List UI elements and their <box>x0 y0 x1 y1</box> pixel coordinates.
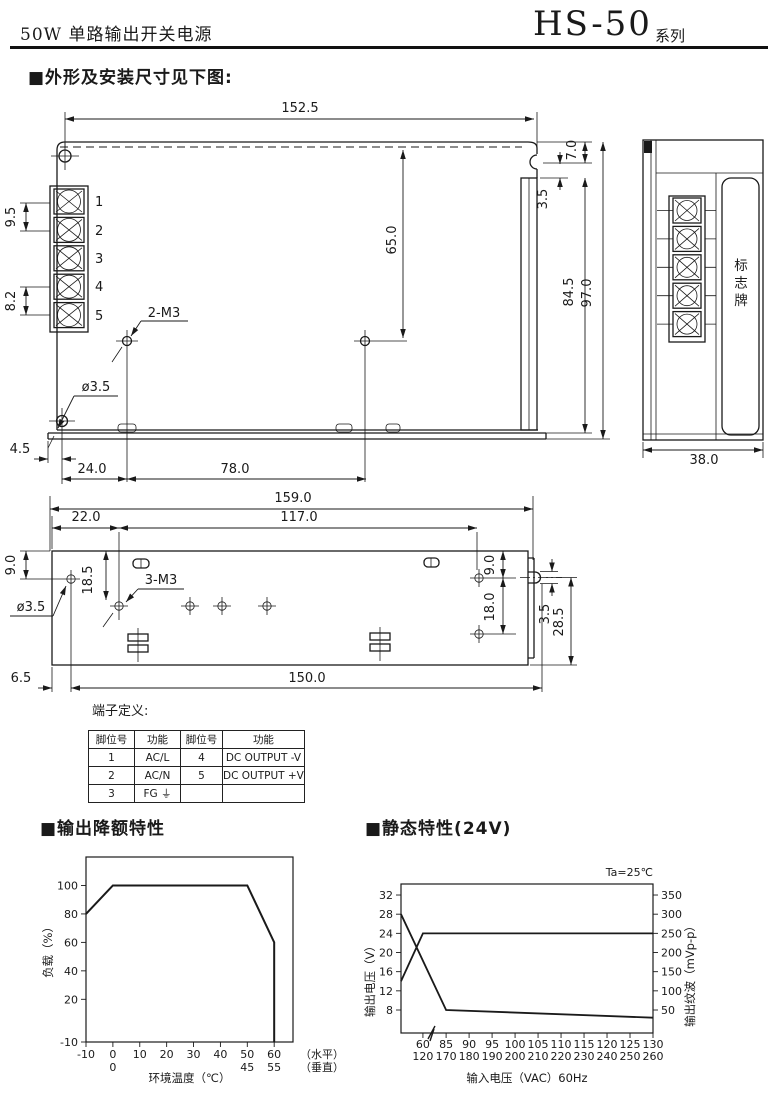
y-tick-label-left: 20 <box>379 947 393 960</box>
x-tick-label: 30 <box>187 1048 201 1061</box>
output-ripple-curve <box>401 914 653 1017</box>
x-tick-label-200v: 230 <box>574 1050 595 1063</box>
characteristic-charts: 10080604020-10-10001020304050456055（水平）（… <box>0 810 778 1096</box>
section-title-dimensions: ■外形及安装尺寸见下图: <box>28 63 233 88</box>
y-tick-label-right: 50 <box>661 1004 675 1017</box>
y-tick-label-left: 32 <box>379 889 393 902</box>
pin-cell: 4 <box>181 749 223 767</box>
x-tick-label-row2: 55 <box>267 1061 281 1074</box>
derating-curve <box>86 885 274 1042</box>
x-axis-label: 输入电压（VAC）60Hz <box>466 1071 587 1085</box>
pin-cell: 3 <box>89 785 135 803</box>
x-tick-label: 60 <box>267 1048 281 1061</box>
dim-flange-gap: 3.5 <box>536 189 551 210</box>
dim-body-height: 84.5 <box>562 278 577 307</box>
y-tick-label: 60 <box>64 936 78 949</box>
x-tick-label: 10 <box>133 1048 147 1061</box>
dim-pin-depth: 28.5 <box>552 608 567 637</box>
y-tick-label-left: 28 <box>379 908 393 921</box>
output-voltage-curve <box>401 933 653 981</box>
col-header-pin2: 脚位号 <box>181 731 223 749</box>
dim-total-height: 97.0 <box>580 279 595 308</box>
dim-total-length: 159.0 <box>274 491 311 506</box>
dim-left-margin: 6.5 <box>11 671 32 686</box>
front-view: 1 2 3 4 5 <box>48 142 546 484</box>
x-tick-label-200v: 180 <box>459 1050 480 1063</box>
terminal-number-1: 1 <box>95 195 103 210</box>
y-axis-label-left: 输出电压（V） <box>363 940 377 1017</box>
x-tick-label-row2: 0 <box>109 1061 116 1074</box>
dim-screw-holes-front: 2-M3 <box>148 306 180 321</box>
dim-pin-offset: 3.5 <box>538 604 553 625</box>
dim-hole-pitch-x: 78.0 <box>221 462 250 477</box>
y-tick-label-left: 24 <box>379 927 393 940</box>
y-tick-label: -10 <box>60 1036 78 1049</box>
y-tick-label-left: 16 <box>379 966 393 979</box>
x-tick-label-200v: 120 <box>412 1050 433 1063</box>
horizontal-mount-label: （水平） <box>300 1048 344 1061</box>
pin-cell: 5 <box>181 767 223 785</box>
dim-terminal-pitch-top: 9.5 <box>4 207 19 228</box>
dim-right-top-margin: 9.0 <box>483 555 498 576</box>
x-tick-label-200v: 240 <box>597 1050 618 1063</box>
x-tick-label-200v: 220 <box>551 1050 572 1063</box>
function-cell: DC OUTPUT -V <box>223 749 305 767</box>
pin-cell: 2 <box>89 767 135 785</box>
dim-screw-holes-bottom: 3-M3 <box>145 573 177 588</box>
function-cell: AC/N <box>135 767 181 785</box>
header-rule <box>10 46 768 49</box>
y-axis-label-right: 输出纹波（mVp-p） <box>683 920 697 1027</box>
dim-terminal-pitch-bottom: 8.2 <box>4 291 19 312</box>
y-tick-label-left: 12 <box>379 985 393 998</box>
terminal-table: 脚位号 功能 脚位号 功能 1 AC/L 4 DC OUTPUT -V 2 AC… <box>88 730 305 803</box>
x-tick-label: 40 <box>213 1048 227 1061</box>
y-axis-label: 负载（%） <box>41 921 55 978</box>
col-header-function2: 功能 <box>223 731 305 749</box>
y-tick-label-right: 150 <box>661 966 682 979</box>
terminal-number-3: 3 <box>95 252 103 267</box>
static-plot-box <box>401 884 653 1033</box>
series-label: 系列 <box>655 25 685 46</box>
y-tick-label-right: 350 <box>661 889 682 902</box>
y-tick-label-right: 200 <box>661 947 682 960</box>
x-tick-label-200v: 210 <box>528 1050 549 1063</box>
terminal-table-header-row: 脚位号 功能 脚位号 功能 <box>89 731 305 749</box>
temperature-annotation: Ta=25℃ <box>605 866 653 879</box>
x-axis-label: 环境温度（℃） <box>149 1071 231 1085</box>
datasheet-page: { "header": { "product": "50W 单路输出开关电源",… <box>0 0 778 1096</box>
x-tick-label-row2: 45 <box>240 1061 254 1074</box>
model-name: HS-50 <box>533 4 652 44</box>
table-row: 3 FG ⏚ <box>89 785 305 803</box>
terminal-number-5: 5 <box>95 309 103 324</box>
x-tick-label: -10 <box>77 1048 95 1061</box>
dim-corner-offset: 7.0 <box>565 140 580 161</box>
function-cell <box>223 785 305 803</box>
dim-hole-dia-bottom: ø3.5 <box>17 600 46 615</box>
dim-top-margin: 9.0 <box>4 555 19 576</box>
dim-hole-offset-x: 24.0 <box>78 462 107 477</box>
x-tick-label-200v: 260 <box>643 1050 664 1063</box>
dim-base-indent: 4.5 <box>10 442 31 457</box>
x-tick-label: 20 <box>160 1048 174 1061</box>
y-tick-label: 40 <box>64 965 78 978</box>
dim-hole-height: 65.0 <box>385 226 400 255</box>
y-tick-label-right: 250 <box>661 927 682 940</box>
vertical-mount-label: （垂直） <box>300 1060 344 1074</box>
dim-right-hole-pitch: 18.0 <box>483 593 498 622</box>
dim-left-offset: 22.0 <box>72 510 101 525</box>
col-header-pin: 脚位号 <box>89 731 135 749</box>
x-tick-label: 50 <box>240 1048 254 1061</box>
y-tick-label: 20 <box>64 993 78 1006</box>
x-tick-label-200v: 200 <box>505 1050 526 1063</box>
function-cell: FG ⏚ <box>135 785 181 803</box>
dim-hole-span: 117.0 <box>280 510 317 525</box>
dim-hole-dia-front: ø3.5 <box>82 380 111 395</box>
x-tick-label-200v: 170 <box>436 1050 457 1063</box>
terminal-number-4: 4 <box>95 280 103 295</box>
function-cell: DC OUTPUT +V <box>223 767 305 785</box>
dim-base-length: 150.0 <box>288 671 325 686</box>
y-tick-label: 100 <box>57 879 78 892</box>
table-row: 1 AC/L 4 DC OUTPUT -V <box>89 749 305 767</box>
x-tick-label-200v: 250 <box>620 1050 641 1063</box>
bottom-view <box>20 532 562 692</box>
function-cell: AC/L <box>135 749 181 767</box>
dim-side-width: 38.0 <box>690 453 719 468</box>
x-tick-label: 0 <box>109 1048 116 1061</box>
y-tick-label-right: 300 <box>661 908 682 921</box>
y-tick-label: 80 <box>64 908 78 921</box>
terminal-number-2: 2 <box>95 224 103 239</box>
bottom-view-dimensions: 159.0 22.0 117.0 9.0 18.5 3-M3 ø3.5 6.5 … <box>4 491 577 692</box>
y-tick-label-left: 8 <box>386 1004 393 1017</box>
pin-cell <box>181 785 223 803</box>
y-tick-label-right: 100 <box>661 985 682 998</box>
nameplate-label: 标志牌 <box>729 258 749 311</box>
table-row: 2 AC/N 5 DC OUTPUT +V <box>89 767 305 785</box>
pin-cell: 1 <box>89 749 135 767</box>
x-tick-label-200v: 190 <box>482 1050 503 1063</box>
dim-top-width: 152.5 <box>281 101 318 116</box>
terminal-table-title: 端子定义: <box>92 700 148 719</box>
page-title: 50W 单路输出开关电源 <box>20 20 213 45</box>
col-header-function: 功能 <box>135 731 181 749</box>
dim-hole-inset: 18.5 <box>81 566 96 595</box>
